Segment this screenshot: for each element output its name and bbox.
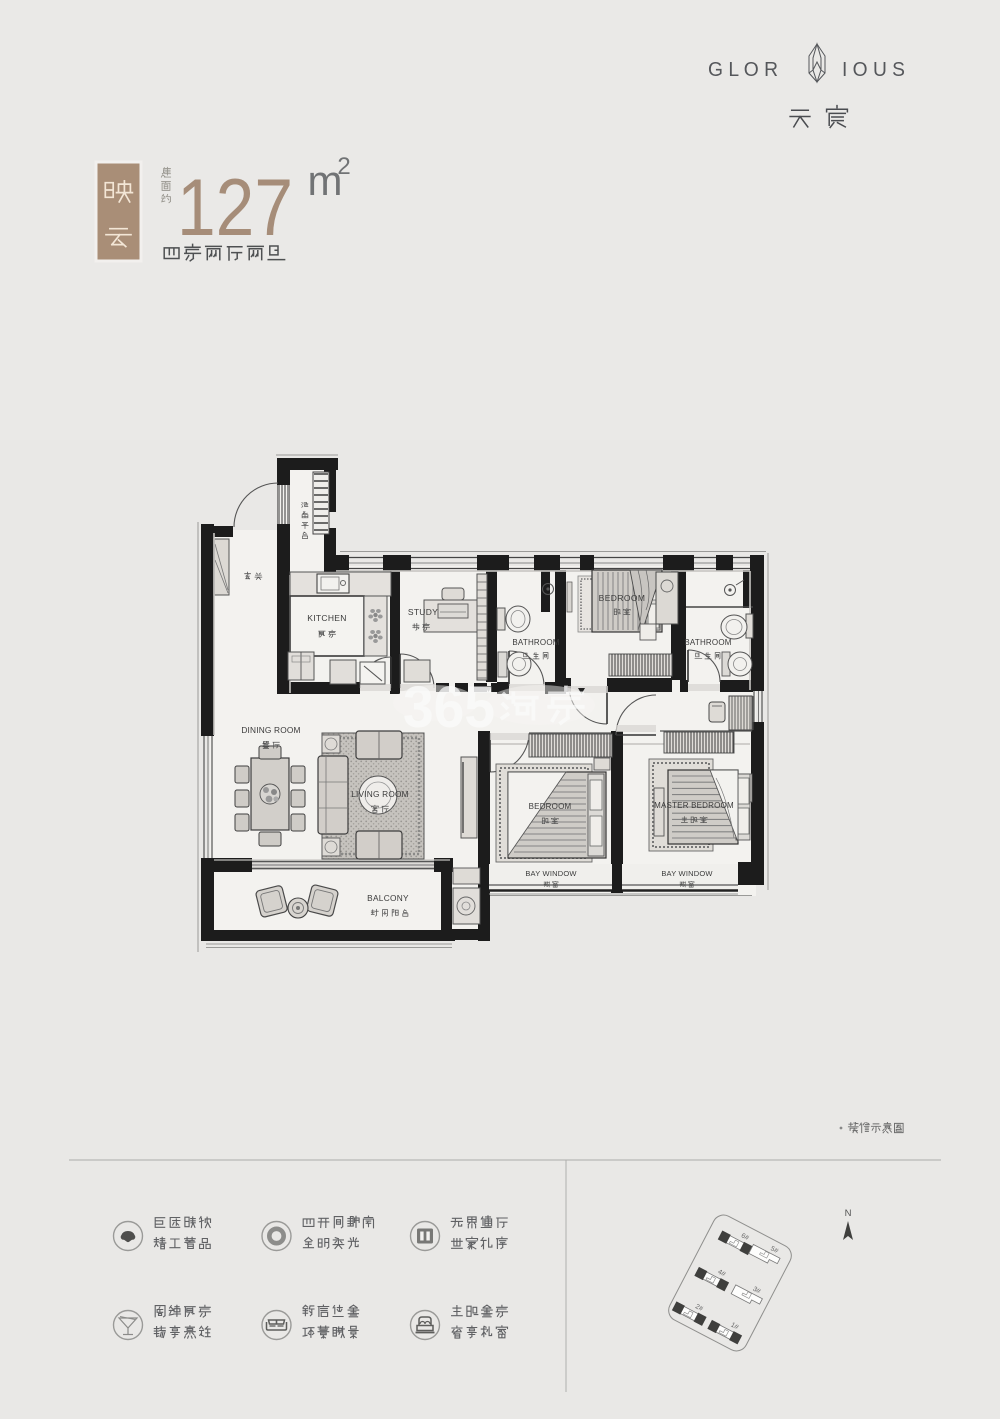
svg-text:DINING ROOM: DINING ROOM: [241, 725, 300, 735]
svg-text:BATHROOM: BATHROOM: [512, 638, 559, 647]
svg-text:2: 2: [337, 153, 350, 180]
svg-text:BAY WINDOW: BAY WINDOW: [525, 869, 577, 878]
svg-text:BEDROOM: BEDROOM: [529, 802, 572, 811]
svg-text:MASTER BEDROOM: MASTER BEDROOM: [654, 801, 734, 810]
svg-text:BATHROOM: BATHROOM: [684, 638, 731, 647]
svg-text:365: 365: [403, 675, 495, 740]
svg-text:BALCONY: BALCONY: [367, 893, 409, 903]
svg-text:127: 127: [177, 163, 293, 253]
svg-text:STUDY: STUDY: [408, 607, 438, 617]
svg-text:BAY WINDOW: BAY WINDOW: [661, 869, 713, 878]
svg-text:I O U S: I O U S: [842, 58, 905, 81]
svg-text:LIVING ROOM: LIVING ROOM: [351, 789, 409, 799]
svg-text:G L O R: G L O R: [708, 58, 778, 81]
svg-text:BEDROOM: BEDROOM: [599, 593, 646, 603]
svg-text:KITCHEN: KITCHEN: [307, 613, 346, 623]
svg-text:N: N: [845, 1208, 852, 1219]
